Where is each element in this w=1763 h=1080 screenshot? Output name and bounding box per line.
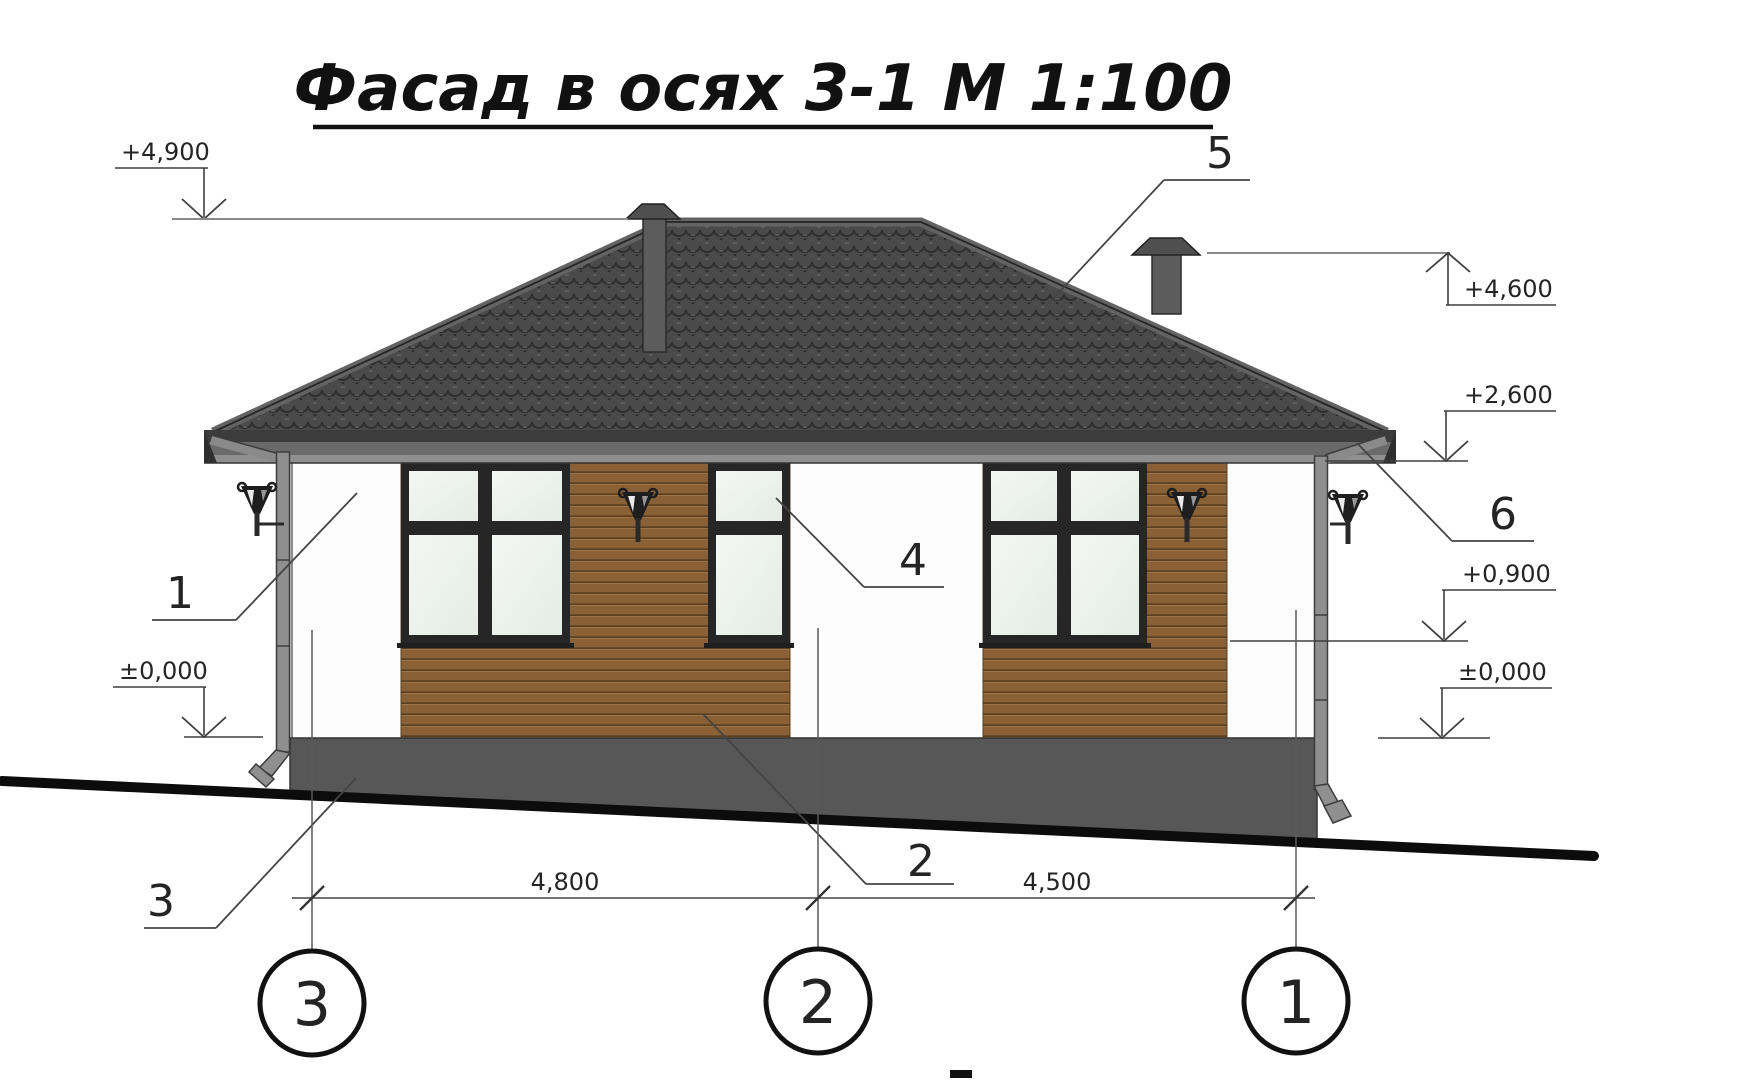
elevation-mark-4900: +4,900 xyxy=(115,138,628,219)
axis-label: 2 xyxy=(799,968,837,1038)
dimension-line: 4,800 4,500 xyxy=(292,868,1315,910)
crop-mark xyxy=(950,1070,972,1078)
callout-number: 5 xyxy=(1206,128,1234,179)
window-2 xyxy=(704,463,794,648)
plinth xyxy=(290,738,1317,841)
window-3 xyxy=(979,463,1151,648)
callout-number: 1 xyxy=(166,568,194,619)
elevation-label: +0,900 xyxy=(1462,560,1551,588)
drawing-canvas: Фасад в осях 3-1 М 1:100 +4,900 +4,600 +… xyxy=(0,0,1763,1080)
dimension-4800-label: 4,800 xyxy=(531,868,600,896)
chimney-right xyxy=(1132,238,1200,314)
axis-circle-1: 1 xyxy=(1244,949,1348,1053)
elevation-mark-4600: +4,600 xyxy=(1207,253,1556,305)
elevation-label: +4,900 xyxy=(121,138,210,166)
elevation-label: +4,600 xyxy=(1464,275,1553,303)
callout-5: 5 xyxy=(1049,128,1250,303)
window-sill xyxy=(704,643,794,648)
elevation-mark-0000-right: ±0,000 xyxy=(1378,658,1552,738)
axis-circle-3: 3 xyxy=(260,951,364,1055)
window-sill xyxy=(397,643,574,648)
axis-label: 1 xyxy=(1277,968,1315,1038)
wall-lamp-3 xyxy=(1329,491,1367,544)
elevation-mark-0000-left: ±0,000 xyxy=(113,657,263,737)
callout-number: 3 xyxy=(147,876,175,927)
elevation-label: +2,600 xyxy=(1464,381,1553,409)
fascia-band xyxy=(204,430,1396,463)
dimension-4500-label: 4,500 xyxy=(1023,868,1092,896)
callout-number: 2 xyxy=(907,836,935,887)
facade-drawing: Фасад в осях 3-1 М 1:100 +4,900 +4,600 +… xyxy=(0,0,1763,1080)
elevation-label: ±0,000 xyxy=(1458,658,1547,686)
elevation-label: ±0,000 xyxy=(119,657,208,685)
page-title: Фасад в осях 3-1 М 1:100 xyxy=(294,52,1233,126)
callout-number: 4 xyxy=(899,535,927,586)
callout-number: 6 xyxy=(1489,489,1517,540)
window-sill xyxy=(979,643,1151,648)
axis-label: 3 xyxy=(293,970,331,1040)
window-1 xyxy=(397,463,574,648)
axis-circle-2: 2 xyxy=(766,949,870,1053)
